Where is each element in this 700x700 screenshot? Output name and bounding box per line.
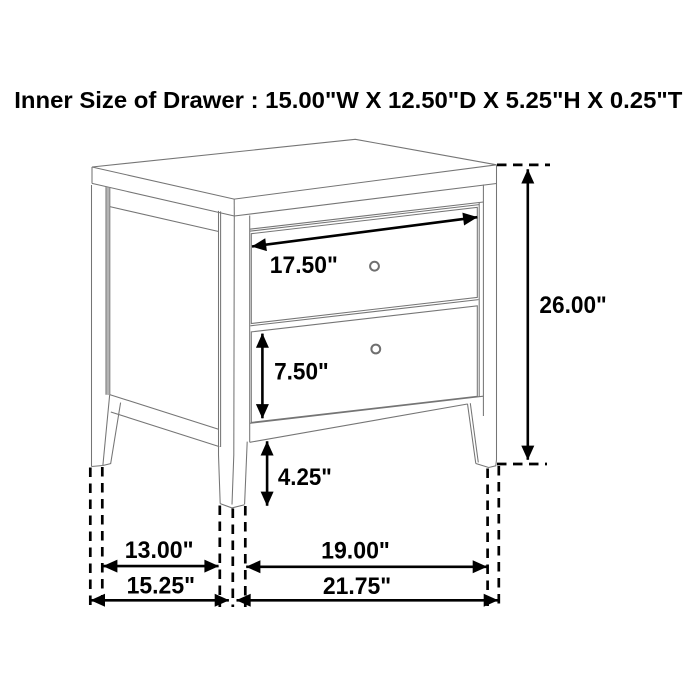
svg-text:21.75": 21.75" [323, 573, 391, 600]
svg-text:7.50": 7.50" [274, 358, 329, 385]
svg-text:19.00": 19.00" [321, 537, 390, 564]
svg-text:Inner Size of Drawer : 15.00"W: Inner Size of Drawer : 15.00"W X 12.50"D… [14, 87, 682, 113]
svg-text:4.25": 4.25" [278, 464, 332, 491]
svg-text:26.00": 26.00" [539, 292, 606, 319]
svg-text:13.00": 13.00" [125, 537, 194, 564]
svg-text:15.25": 15.25" [127, 573, 195, 600]
svg-text:17.50": 17.50" [270, 252, 338, 279]
